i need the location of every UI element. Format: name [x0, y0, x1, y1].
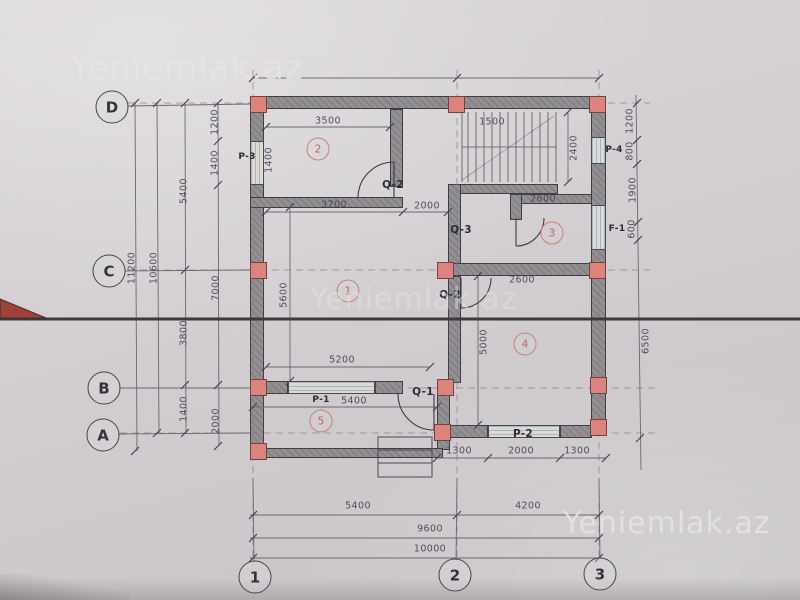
- column-marker: [437, 262, 454, 279]
- label-q3: Q-3: [450, 224, 472, 236]
- dim-left-11200: 11200: [127, 252, 138, 284]
- dim-room2-width: 3500: [315, 116, 341, 127]
- dim-left-1400a: 1400: [210, 150, 221, 176]
- label-f1: F-1: [609, 224, 626, 234]
- label-q2-upper: Q-2: [382, 179, 404, 191]
- dim-room4-height: 5000: [479, 329, 490, 355]
- window-f1: [591, 205, 606, 250]
- column-marker: [250, 443, 267, 460]
- column-marker: [589, 262, 606, 279]
- dim-left-3800: 3800: [179, 320, 190, 346]
- dim-hall-width: 3700: [321, 200, 347, 211]
- column-marker: [590, 419, 607, 436]
- dim-right-6500: 6500: [641, 328, 652, 354]
- dim-left-10600: 10600: [149, 252, 160, 284]
- room-number-4: 4: [514, 333, 537, 356]
- dim-room4-b1: 1300: [446, 446, 472, 457]
- grid-bubble-1: 1: [239, 561, 272, 594]
- grid-bubble-a: A: [87, 419, 120, 452]
- dim-right-1200: 1200: [625, 108, 636, 134]
- room-number-3: 3: [541, 222, 564, 245]
- grid-bubble-d: D: [96, 91, 129, 124]
- label-p2: P-2: [513, 428, 533, 440]
- column-marker: [250, 379, 267, 396]
- grid-bubble-2: 2: [439, 559, 472, 592]
- room-number-2: 2: [307, 138, 330, 161]
- grid-bubble-3: 3: [584, 558, 617, 591]
- dim-span-total: 10000: [414, 544, 446, 555]
- dim-room1-height: 5600: [279, 282, 290, 308]
- dim-porch-window: 5400: [341, 396, 367, 407]
- dim-left-1400b: 1400: [179, 396, 190, 422]
- dim-span-23: 4200: [515, 501, 541, 512]
- dim-span-12: 5400: [345, 501, 371, 512]
- dim-room4-b2: 2000: [508, 446, 534, 457]
- window-p4: [591, 137, 606, 164]
- label-p1: P-1: [312, 395, 329, 405]
- column-marker: [250, 262, 267, 279]
- dim-left-5400: 5400: [179, 178, 190, 204]
- grid-bubble-c: C: [93, 255, 126, 288]
- dim-right-600: 600: [627, 219, 638, 238]
- dim-span-inner: 9600: [417, 524, 443, 535]
- column-marker: [589, 96, 606, 113]
- dim-stairs-width: 1500: [479, 117, 505, 128]
- column-marker: [437, 379, 454, 396]
- label-q1: Q-1: [412, 386, 434, 398]
- label-p4: P-4: [605, 145, 622, 155]
- label-p3: P-3: [238, 152, 255, 162]
- dim-stair-hall: 2600: [530, 194, 556, 205]
- room-number-5: 5: [310, 410, 333, 433]
- dim-left-1200: 1200: [210, 109, 221, 135]
- dim-left-2000: 2000: [211, 408, 222, 434]
- watermark: Yeniemlak.az: [563, 506, 771, 541]
- window-p1: [288, 381, 375, 394]
- dim-hall-depth: 2000: [414, 201, 440, 212]
- watermark: Yeniemlak.az: [310, 282, 518, 317]
- dim-room4-b3: 1300: [564, 446, 590, 457]
- dim-stairs-depth: 2400: [569, 135, 580, 161]
- entry-steps: [378, 437, 432, 477]
- dim-room1-width: 5200: [329, 355, 355, 366]
- dim-left-7000: 7000: [211, 275, 222, 301]
- column-marker: [590, 377, 607, 394]
- dim-right-800: 800: [625, 141, 636, 160]
- dim-right-1900: 1900: [628, 177, 639, 203]
- floor-plan-photo: Yeniemlak.az Yeniemlak.az Yeniemlak.az: [0, 0, 800, 600]
- stair-treads: [462, 112, 556, 182]
- column-marker: [250, 96, 267, 113]
- watermark: Yeniemlak.az: [70, 48, 304, 88]
- dim-window-p3-height: 1400: [264, 147, 275, 173]
- window-p3: [250, 141, 264, 185]
- grid-bubble-b: B: [88, 372, 121, 405]
- column-marker: [434, 424, 451, 441]
- column-marker: [448, 96, 465, 113]
